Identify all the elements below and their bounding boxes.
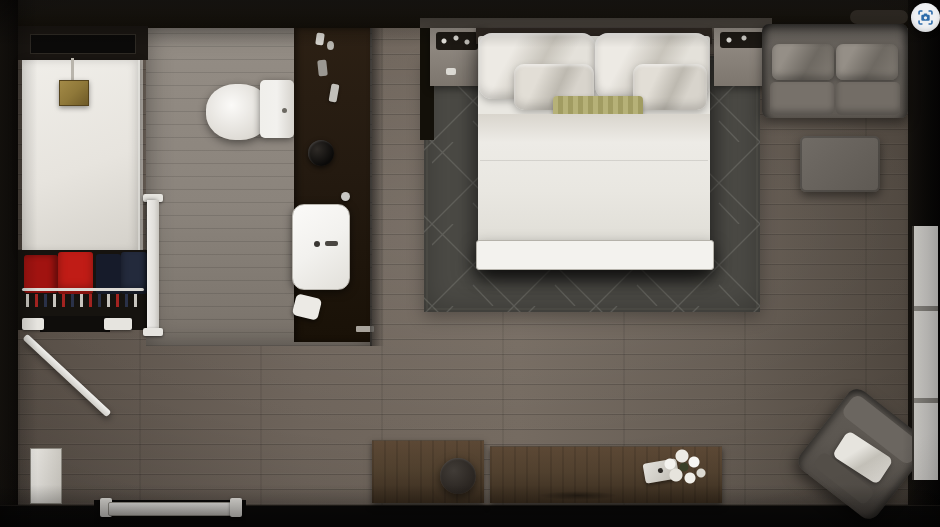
door-jamb-right — [104, 318, 132, 330]
flower-arrangement — [660, 448, 710, 494]
screenshot-button[interactable] — [911, 3, 940, 32]
desk-bowl-shadow — [538, 491, 618, 500]
sofa-back-pillow-right — [836, 44, 898, 80]
amenity-bottle-3 — [317, 60, 328, 77]
entry-door — [108, 502, 234, 516]
amenity-bottle-1 — [315, 33, 325, 46]
bed-wall-shelf — [420, 18, 772, 28]
sofa — [762, 24, 908, 118]
shower-head — [59, 80, 89, 106]
duvet-seam — [480, 160, 708, 161]
nightstand-tray-right — [720, 32, 764, 48]
pillow-mid-right — [633, 64, 707, 110]
sink — [292, 204, 350, 290]
nightstand-item — [446, 68, 456, 75]
sink-drain — [314, 241, 320, 247]
door-track-tab-bottom — [143, 328, 163, 336]
sofa-seat-right — [836, 82, 900, 115]
door-jamb-left — [22, 318, 44, 330]
ottoman — [800, 136, 880, 192]
window — [912, 226, 938, 480]
sofa-seat-left — [770, 82, 834, 115]
amenity-bottle-2 — [327, 41, 334, 50]
bathroom-sliding-door — [147, 200, 159, 332]
floorplan-canvas — [0, 0, 940, 527]
shower-niche-shelf — [30, 34, 136, 54]
hanger-hooks — [26, 294, 140, 307]
stool — [440, 458, 476, 494]
wall-end-cap — [356, 326, 374, 332]
shower-glass — [138, 60, 143, 252]
window-mullion-1 — [914, 306, 938, 311]
closet-rail — [22, 288, 144, 291]
decor-bowl — [308, 140, 334, 166]
toilet-flush-button — [282, 108, 287, 113]
toilet-tank — [260, 80, 294, 138]
wardrobe-mirror-panel — [30, 448, 62, 504]
wall-left — [0, 0, 18, 527]
nightstand-tray-left — [436, 32, 478, 50]
shower-hose — [71, 58, 74, 82]
bed — [476, 28, 712, 270]
sofa-back-pillow-left — [772, 44, 834, 80]
foot-bench — [476, 240, 714, 270]
tooltip-remnant — [850, 10, 908, 24]
faucet — [341, 192, 350, 201]
sink-overflow — [325, 241, 338, 246]
entry-door-jamb-right — [230, 498, 242, 517]
duvet — [478, 114, 710, 242]
camera-focus-icon — [916, 8, 935, 27]
closet-doorway-shadow — [40, 316, 110, 332]
window-mullion-2 — [914, 398, 938, 403]
